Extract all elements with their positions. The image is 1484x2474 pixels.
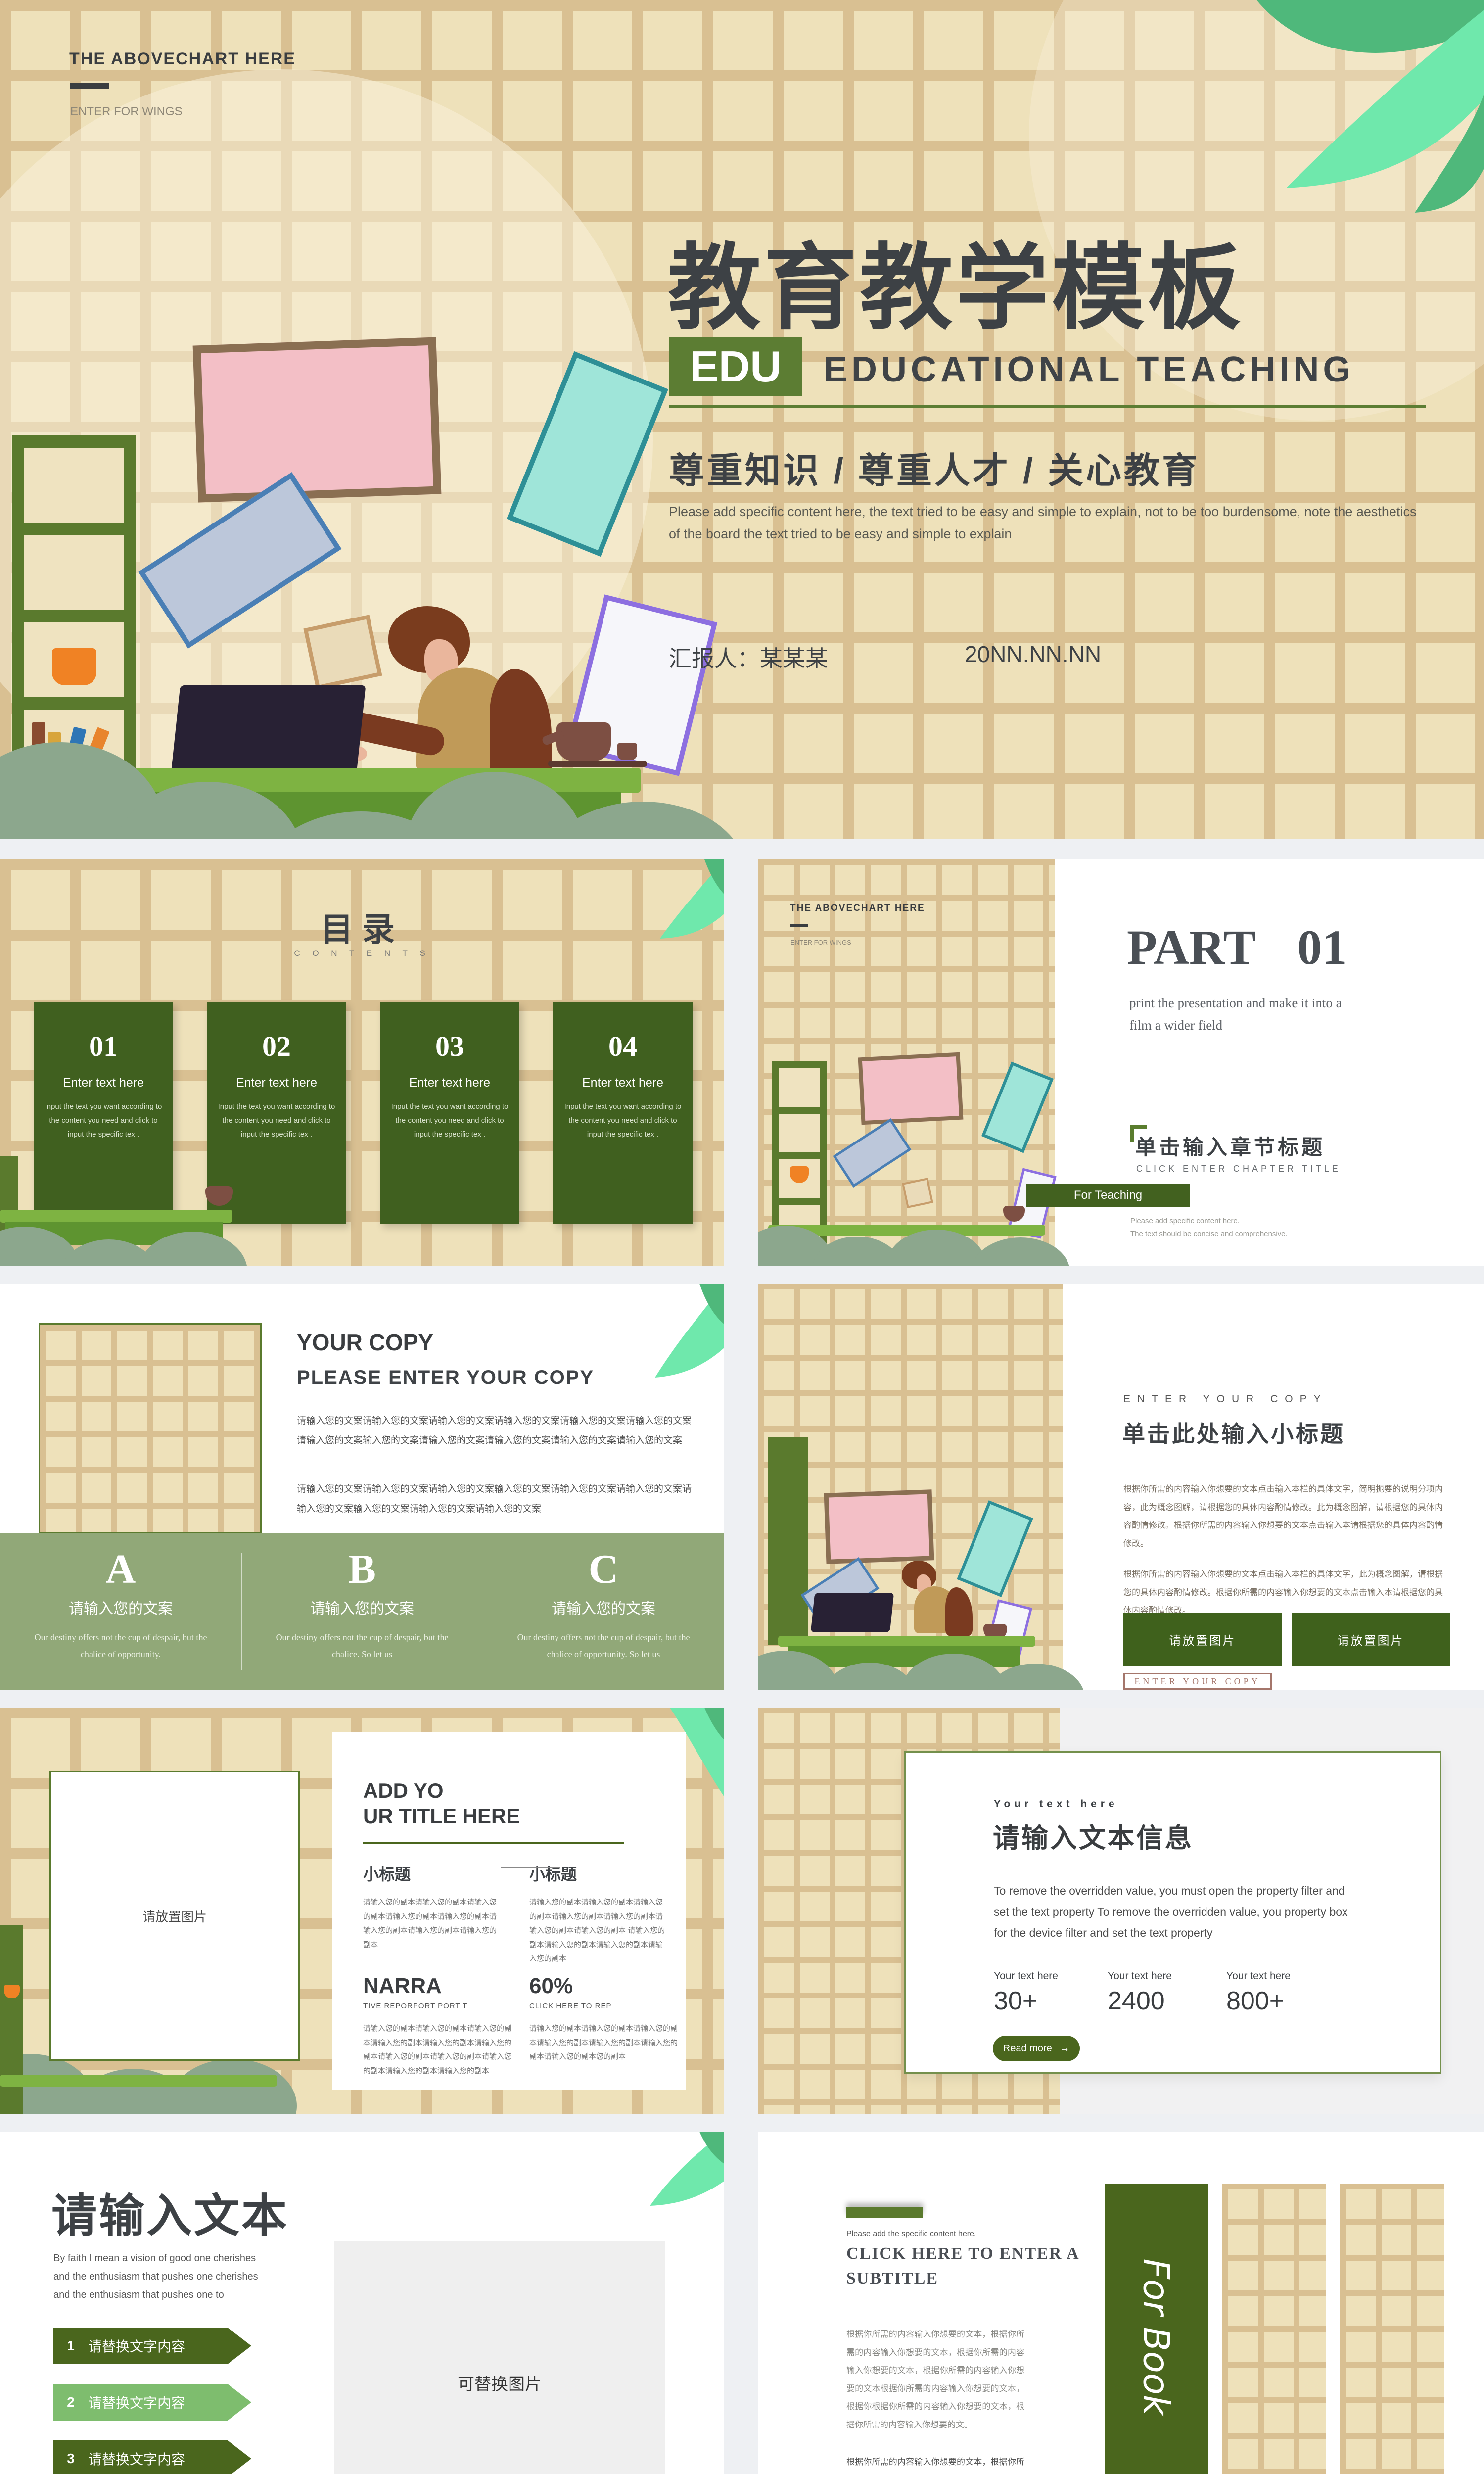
part-number-title: PART 01 (1127, 919, 1346, 976)
image-placeholder-2[interactable]: 请放置图片 (1292, 1613, 1450, 1666)
reporter-label: 汇报人：某某某 (669, 641, 828, 673)
abc-band: A 请输入您的文案 Our destiny offers not the cup… (0, 1533, 724, 1690)
book-spine-label: For Book (1136, 2258, 1177, 2415)
column-letter: C (483, 1545, 724, 1593)
laptop-illustration (811, 1593, 894, 1632)
read-more-label: Read more (1003, 2043, 1052, 2054)
pink-frame (858, 1052, 964, 1125)
section-title-2: 小标题 (529, 1862, 577, 1885)
list-item-3[interactable]: 3 请替换文字内容 (53, 2440, 251, 2474)
toc-subtitle: C O N T E N T S (0, 949, 724, 958)
subtitle-para1: 根据你所需的内容输入你想要的文本点击输入本栏的具体文字，简明扼要的说明分项内容，… (1123, 1480, 1450, 1553)
slide-your-copy: YOUR COPY PLEASE ENTER YOUR COPY 请输入您的文案… (0, 1284, 724, 1690)
item-text: 请替换文字内容 (88, 2392, 185, 2412)
abc-column-a: A 请输入您的文案 Our destiny offers not the cup… (0, 1533, 241, 1690)
text-slide-body: By faith I mean a vision of good one che… (53, 2249, 266, 2304)
replaceable-image-placeholder[interactable]: 可替换图片 (334, 2241, 665, 2474)
narra-small: TIVE REPORPORT PORT T (363, 2002, 467, 2010)
brand-logo: THE ABOVECHART HERE (69, 49, 296, 69)
your-copy-title: YOUR COPY (297, 1329, 433, 1356)
part01-illustration-panel: THE ABOVECHART HERE ENTER FOR WINGS (758, 859, 1055, 1266)
item-text: 请替换文字内容 (88, 2336, 185, 2356)
stats-card: Your text here 请输入文本信息 To remove the ove… (904, 1751, 1441, 2074)
small-frame (902, 1178, 933, 1208)
shelf-fragment (772, 1061, 827, 1249)
toc-item-3[interactable]: 03 Enter text here Input the text you wa… (380, 1002, 519, 1224)
grid-strip (1340, 2184, 1444, 2474)
bush (986, 1664, 1085, 1690)
image-placeholder-1[interactable]: 请放置图片 (1123, 1613, 1282, 1666)
book-spine: For Book (1105, 2184, 1208, 2474)
toc-number: 02 (207, 1030, 346, 1063)
stat-label: Your text here (1108, 1970, 1172, 1982)
toc-number: 01 (34, 1030, 173, 1063)
stats-body: To remove the overridden value, you must… (994, 1880, 1355, 1944)
stat-2: Your text here 2400 (1108, 1970, 1172, 2016)
tag-note-1: Please add specific content here. (1130, 1217, 1240, 1225)
section-body-2: 请输入您的副本请输入您的副本请输入您的副本请输入您的副本请输入您的副本请输入您的… (529, 1896, 668, 1966)
your-copy-para1: 请输入您的文案请输入您的文案请输入您的文案请输入您的文案请输入您的文案请输入您的… (297, 1411, 697, 1451)
brand-dash (790, 924, 808, 927)
brand-dash (70, 83, 109, 89)
item-text: 请替换文字内容 (88, 2449, 185, 2469)
item-number: 2 (53, 2394, 88, 2410)
book-para1: 根据你所需的内容输入你想要的文本，根据你所需的内容输入你想要的文本，根据你所需的… (846, 2326, 1024, 2434)
toc-item-body: Input the text you want according to the… (45, 1100, 162, 1141)
tag-note-2: The text should be concise and comprehen… (1130, 1230, 1288, 1238)
book-note: Please add the specific content here. (846, 2230, 976, 2238)
pink-frame (824, 1489, 934, 1564)
slide-stats: Your text here 请输入文本信息 To remove the ove… (758, 1708, 1484, 2114)
toc-item-body: Input the text you want according to the… (564, 1100, 682, 1141)
for-teaching-tag: For Teaching (1026, 1184, 1190, 1207)
toc-number: 04 (553, 1030, 693, 1063)
stat-value: 2400 (1108, 1986, 1172, 2016)
column-body: Our destiny offers not the cup of despai… (30, 1629, 212, 1663)
chapter-title-cn: 单击输入章节标题 (1135, 1131, 1325, 1161)
grid-strip (1222, 2184, 1326, 2474)
list-item-1[interactable]: 1 请替换文字内容 (53, 2328, 251, 2364)
pct-small: CLICK HERE TO REP (529, 2002, 612, 2010)
toc-item-title: Enter text here (553, 1076, 693, 1090)
bush (971, 1237, 1070, 1266)
brand-subtitle: ENTER FOR WINGS (790, 939, 851, 946)
report-date: 20NN.NN.NN (965, 641, 1101, 667)
text-slide-title: 请输入文本 (51, 2179, 289, 2245)
person-back (945, 1587, 973, 1637)
stat-label: Your text here (1226, 1970, 1291, 1982)
image-placeholder[interactable]: 请放置图片 (49, 1771, 300, 2061)
item-number: 3 (53, 2451, 88, 2467)
toc-item-body: Input the text you want according to the… (391, 1100, 509, 1141)
list-item-2[interactable]: 2 请替换文字内容 (53, 2384, 251, 2421)
toc-item-title: Enter text here (380, 1076, 519, 1090)
abc-column-b: B 请输入您的文案 Our destiny offers not the cup… (241, 1533, 483, 1690)
template-preview-page: THE ABOVECHART HERE ENTER FOR WINGS (0, 0, 1484, 2474)
toc-title: 目录 (0, 903, 724, 951)
your-copy-subtitle: PLEASE ENTER YOUR COPY (297, 1367, 594, 1389)
teacup-icon (617, 743, 637, 760)
book-title-line1: CLICK HERE TO ENTER A (846, 2244, 1080, 2263)
cover-slogan: 尊重知识 / 尊重人才 / 关心教育 (669, 441, 1200, 493)
subtitle-eyebrow: ENTER YOUR COPY (1123, 1393, 1328, 1405)
desk-fragment (778, 1636, 1035, 1647)
stat-value: 800+ (1226, 1986, 1291, 2016)
slide-part01: THE ABOVECHART HERE ENTER FOR WINGS PART (758, 859, 1484, 1266)
read-more-button[interactable]: Read more → (993, 2036, 1080, 2061)
stat-3: Your text here 800+ (1226, 1970, 1291, 2016)
section-body-1: 请输入您的副本请输入您的副本请输入您的副本请输入您的副本请输入您的副本请输入您的… (363, 1896, 502, 1952)
stat-label: Your text here (994, 1970, 1058, 1982)
bush (168, 2059, 297, 2114)
column-body: Our destiny offers not the cup of despai… (271, 1629, 453, 1663)
divider (501, 1867, 560, 1868)
illustration-panel (758, 1284, 1063, 1690)
green-bar (846, 2207, 923, 2218)
green-rule (363, 1842, 624, 1844)
pink-frame (193, 337, 442, 503)
toc-item-4[interactable]: 04 Enter text here Input the text you wa… (553, 1002, 693, 1224)
book-title-line2: SUBTITLE (846, 2269, 938, 2288)
column-title: 请输入您的文案 (483, 1596, 724, 1618)
leaf-decoration (620, 2132, 724, 2206)
edu-badge: EDU (669, 337, 802, 396)
tray (548, 761, 647, 767)
book-para2: 根据你所需的内容输入你想要的文本，根据你所需的内容输入你想要的文本，根据你所需的… (846, 2453, 1024, 2474)
subtitle-title: 单击此处输入小标题 (1122, 1416, 1345, 1449)
stat-value: 30+ (994, 1986, 1058, 2016)
teapot-icon (556, 722, 611, 761)
slide-subtitle: ENTER YOUR COPY 单击此处输入小标题 根据你所需的内容输入你想要的… (758, 1284, 1484, 1690)
toc-item-body: Input the text you want according to the… (218, 1100, 335, 1141)
teal-frame (981, 1062, 1054, 1153)
subtitle-para2: 根据你所需的内容输入你想要的文本点击输入本栏的具体文字，此为概念图解，请根据您的… (1123, 1566, 1450, 1620)
green-underline (669, 405, 1426, 408)
column-title: 请输入您的文案 (0, 1596, 241, 1618)
item-number: 1 (53, 2338, 88, 2354)
stats-eyebrow: Your text here (994, 1798, 1118, 1810)
slide-cover: THE ABOVECHART HERE ENTER FOR WINGS (0, 0, 1484, 839)
your-copy-para2: 请输入您的文案请输入您的文案请输入您的文案输入您的文案请输入您的文案请输入您的文… (297, 1479, 697, 1519)
chapter-title-en: CLICK ENTER CHAPTER TITLE (1136, 1164, 1341, 1174)
brand-logo: THE ABOVECHART HERE (790, 903, 925, 914)
narra-body: 请输入您的副本请输入您的副本请输入您的副本请输入您的副本请输入您的副本请输入您的… (363, 2022, 511, 2078)
abc-column-c: C 请输入您的文案 Our destiny offers not the cup… (483, 1533, 724, 1690)
column-title: 请输入您的文案 (241, 1596, 483, 1618)
cover-body: Please add specific content here, the te… (669, 501, 1421, 545)
pct-body: 请输入您的副本请输入您的副本请输入您的副本请输入您的副本请输入您的副本请输入您的… (529, 2022, 678, 2064)
slide-for-book: Please add the specific content here. CL… (758, 2132, 1484, 2474)
grid-image-placeholder[interactable] (39, 1323, 262, 1534)
slide-text-list: 请输入文本 By faith I mean a vision of good o… (0, 2132, 724, 2474)
desk-fragment (0, 1210, 232, 1223)
blue-frame (833, 1118, 912, 1188)
cover-title: 教育教学模板 (668, 213, 1244, 347)
leaf-decoration (1227, 0, 1484, 213)
add-title-line2: UR TITLE HERE (363, 1805, 520, 1828)
shelf-fragment (768, 1437, 808, 1645)
part-subtitle: print the presentation and make it into … (1129, 992, 1367, 1036)
column-body: Our destiny offers not the cup of despai… (512, 1629, 695, 1663)
cover-subtitle-en: EDUCATIONAL TEACHING (824, 349, 1354, 390)
stat-1: Your text here 30+ (994, 1970, 1058, 2016)
slide-add-title: 请放置图片 ADD YO UR TITLE HERE 小标题 请输入您的副本请输… (0, 1708, 724, 2114)
content-panel: ADD YO UR TITLE HERE 小标题 请输入您的副本请输入您的副本请… (332, 1732, 686, 2090)
desk-fragment (0, 2075, 277, 2087)
add-title-line1: ADD YO (363, 1778, 444, 1804)
leaf-decoration (615, 1284, 724, 1378)
stats-title: 请输入文本信息 (993, 1816, 1194, 1855)
toc-number: 03 (380, 1030, 519, 1063)
toc-item-title: Enter text here (34, 1076, 173, 1090)
toc-item-1[interactable]: 01 Enter text here Input the text you wa… (34, 1002, 173, 1224)
column-letter: B (241, 1545, 483, 1593)
enter-your-copy-button[interactable]: ENTER YOUR COPY (1123, 1673, 1272, 1690)
narra-big: NARRA (363, 1974, 442, 1998)
arrow-right-icon: → (1060, 2043, 1069, 2054)
brand-subtitle: ENTER FOR WINGS (70, 105, 183, 119)
pct-big: 60% (529, 1974, 573, 1998)
vase-icon (52, 648, 96, 685)
slide-toc: 目录 C O N T E N T S 01 Enter text here In… (0, 859, 724, 1266)
teal-frame (957, 1500, 1033, 1597)
laptop-illustration (171, 685, 366, 774)
toc-item-title: Enter text here (207, 1076, 346, 1090)
column-letter: A (0, 1545, 241, 1593)
